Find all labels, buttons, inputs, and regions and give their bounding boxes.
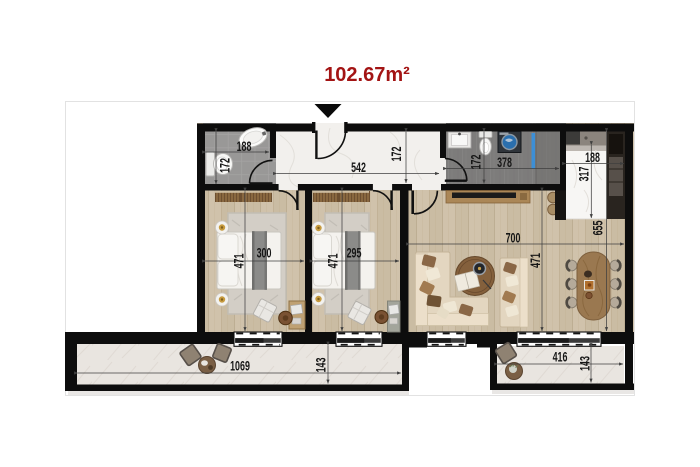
svg-text:317: 317 — [578, 167, 592, 182]
svg-text:172: 172 — [219, 158, 233, 173]
svg-text:1069: 1069 — [230, 360, 250, 374]
svg-text:295: 295 — [347, 247, 362, 261]
svg-text:471: 471 — [233, 253, 247, 268]
svg-text:143: 143 — [315, 358, 329, 373]
svg-text:378: 378 — [497, 156, 512, 170]
svg-text:542: 542 — [351, 161, 366, 175]
svg-text:416: 416 — [553, 351, 568, 365]
svg-text:188: 188 — [237, 140, 252, 154]
svg-text:700: 700 — [506, 232, 521, 246]
svg-text:471: 471 — [529, 253, 543, 268]
svg-text:300: 300 — [257, 247, 272, 261]
svg-text:655: 655 — [592, 220, 606, 235]
svg-text:172: 172 — [390, 147, 404, 162]
svg-text:471: 471 — [327, 253, 341, 268]
svg-text:172: 172 — [470, 155, 484, 170]
svg-text:143: 143 — [579, 356, 593, 371]
svg-text:188: 188 — [585, 151, 600, 165]
